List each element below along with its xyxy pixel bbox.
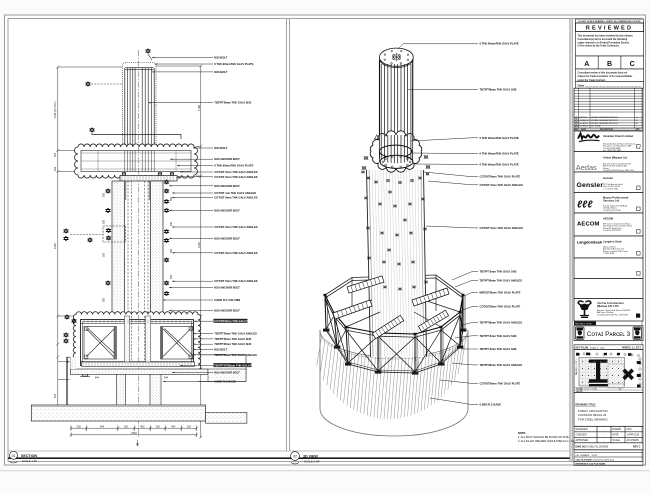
svg-text:M10 ANCHOR BOLT: M10 ANCHOR BOLT (214, 286, 240, 290)
svg-text:10-FEB-15: 10-FEB-15 (579, 126, 588, 128)
svg-text:500: 500 (103, 192, 106, 197)
svg-text:KEY NUMBER 31129: KEY NUMBER 31129 (576, 455, 598, 457)
svg-text:MBT/OT/8mm THK GALV PLATE: MBT/OT/8mm THK GALV PLATE (480, 290, 521, 294)
svg-text:status referred to in Project: status referred to in Project Procedure … (578, 41, 630, 44)
svg-text:2. ALL FILLET WELDED SHOULD BE: 2. ALL FILLET WELDED SHOULD BE 6mm THK. (518, 439, 575, 443)
svg-text:DRAWN: DRAWN (613, 428, 622, 431)
svg-text:DATE: DATE (613, 434, 619, 437)
svg-text:COT/OT mm THK GALV ANGLES: COT/OT mm THK GALV ANGLES (214, 191, 256, 195)
svg-text:25-FEB-15: 25-FEB-15 (579, 123, 588, 125)
svg-text:COT/OT/8mm THK GALV PLATE: COT/OT/8mm THK GALV PLATE (480, 381, 521, 385)
svg-text:AECOM: AECOM (603, 216, 614, 220)
svg-text:SCALE 1:25: SCALE 1:25 (22, 459, 37, 463)
svg-text:944: 944 (171, 425, 176, 428)
svg-text:TBT/PT 8mm THK GALV SHS: TBT/PT 8mm THK GALV SHS (480, 270, 517, 274)
svg-text:PARCEL 1, LOT 1: PARCEL 1, LOT 1 (575, 358, 578, 375)
svg-text:TBT/PT/8mm THK GALV ANGLES: TBT/PT/8mm THK GALV ANGLES (214, 353, 257, 357)
svg-text:This document has been reviewe: This document has been reviewed by the r… (578, 35, 633, 38)
svg-text:200: 200 (156, 425, 161, 428)
svg-text:M10 ANCHOR BOLT: M10 ANCHOR BOLT (214, 236, 240, 240)
svg-text:PROJECT TITLE: PROJECT TITLE (575, 323, 592, 325)
svg-text:TBT/PT/8mm THK GALV ANGLES: TBT/PT/8mm THK GALV ANGLES (480, 363, 523, 367)
svg-text:500: 500 (103, 297, 106, 302)
svg-text:UPDATE GENERAL REVISION: UPDATE GENERAL REVISION (591, 119, 618, 122)
svg-text:Gensler: Gensler (603, 176, 613, 180)
svg-text:1400: 1400 (53, 243, 57, 249)
svg-text:6 THK 90mmTHK GALV PLATE: 6 THK 90mmTHK GALV PLATE (480, 162, 519, 166)
svg-text:SECTION: SECTION (21, 454, 37, 458)
svg-text:6 BED R.C BASE: 6 BED R.C BASE (214, 379, 236, 383)
svg-text:REVIEWED: REVIEWED (586, 26, 633, 32)
svg-text:COT/OT 6mm THK GALV ANGLES: COT/OT 6mm THK GALV ANGLES (214, 170, 258, 174)
svg-text:COT/OT/8mm THK GALV PLATE: COT/OT/8mm THK GALV PLATE (214, 319, 255, 323)
svg-text:PARCEL 1, LOT 2: PARCEL 1, LOT 2 (622, 346, 642, 349)
svg-text:M10 BOLT: M10 BOLT (214, 56, 227, 60)
svg-text:18-MAR-15: 18-MAR-15 (579, 119, 589, 122)
svg-text:NOTE:: NOTE: (518, 431, 526, 435)
svg-text:DRAWING TITLE:: DRAWING TITLE: (576, 404, 597, 407)
svg-text:500: 500 (170, 274, 173, 279)
svg-text:944: 944 (53, 166, 57, 171)
svg-text:TBT/PT/OT/8mm THK GALV PLATE: TBT/PT/OT/8mm THK GALV PLATE (214, 364, 259, 368)
svg-text:(Macau) CO. LTD.: (Macau) CO. LTD. (597, 304, 619, 308)
svg-text:M10 ANCHOR BOLT: M10 ANCHOR BOLT (214, 208, 240, 212)
svg-text:REV C: REV C (633, 445, 641, 448)
svg-text:KEY PLAN: KEY PLAN (576, 346, 589, 349)
svg-text:COT/OT 6mm THK GALV ANGLES: COT/OT 6mm THK GALV ANGLES (480, 183, 524, 187)
svg-text:6 THK 90mmTHK GALV PLATE: 6 THK 90mmTHK GALV PLATE (480, 136, 519, 140)
svg-text:ℓℓℓ: ℓℓℓ (577, 200, 593, 211)
svg-text:COT/OT/8mm THK GALV PLATE: COT/OT/8mm THK GALV PLATE (480, 305, 521, 309)
svg-text:Tel: (852) 3922 9000: Tel: (852) 3922 9000 (603, 230, 620, 232)
svg-text:A: A (584, 61, 589, 68)
svg-text:1400: 1400 (197, 242, 201, 248)
svg-text:TBT/PT/8mm THK GALV ANGLES: TBT/PT/8mm THK GALV ANGLES (480, 278, 523, 282)
svg-text:TBT/PT/8mm THK GALV SHS: TBT/PT/8mm THK GALV SHS (480, 88, 517, 92)
svg-text:AS SHOWN: AS SHOWN (627, 439, 640, 442)
svg-text:200: 200 (187, 425, 192, 428)
svg-text:500: 500 (103, 252, 106, 257)
svg-text:COT/OT 6mm THK GALV ANGLES: COT/OT 6mm THK GALV ANGLES (214, 279, 258, 283)
svg-text:500: 500 (170, 196, 173, 201)
svg-text:CAD FILE NAME 3-SUB_FQ_05093.d: CAD FILE NAME 3-SUB_FQ_05093.dwg (576, 458, 615, 461)
svg-text:UPDATE GENERAL REVISION: UPDATE GENERAL REVISION (591, 116, 618, 119)
svg-text:B: B (607, 61, 612, 68)
svg-text:1-APR-2015: 1-APR-2015 (627, 434, 640, 437)
svg-text:M10 BOLT: M10 BOLT (214, 348, 227, 352)
svg-text:Consultants(s) and is accorded: Consultants(s) and is accorded the follo… (578, 38, 628, 41)
svg-text:AECOM: AECOM (577, 222, 600, 228)
svg-text:SCALE 1:NP: SCALE 1:NP (304, 459, 320, 463)
svg-text:DESIGNED: DESIGNED (576, 429, 588, 431)
svg-text:SCALE 1 : 7500: SCALE 1 : 7500 (590, 346, 605, 349)
svg-text:1. ALL BOLT SHOULD BE FIXING O: 1. ALL BOLT SHOULD BE FIXING ON SITE. (518, 435, 570, 439)
svg-text:TBT/PT/8mm THK GALV SHS: TBT/PT/8mm THK GALV SHS (214, 337, 251, 341)
svg-text:500: 500 (53, 393, 57, 398)
svg-text:TBT/PT/8mm THK GALV SHS: TBT/PT/8mm THK GALV SHS (214, 342, 251, 346)
svg-text:M10 ANCHOR BOLT: M10 ANCHOR BOLT (214, 309, 240, 313)
svg-text:3D VIEW: 3D VIEW (303, 455, 318, 459)
svg-text:CHECKED: CHECKED (576, 435, 588, 437)
svg-text:3-APR-15: 3-APR-15 (579, 116, 587, 119)
svg-text:200: 200 (124, 425, 129, 428)
svg-text:6 BED R.C COLUMN: 6 BED R.C COLUMN (214, 298, 240, 302)
svg-text:Venetian Orient Limited: Venetian Orient Limited (603, 134, 633, 138)
svg-text:LWO: LWO (627, 429, 632, 431)
svg-text:Services Ltd.: Services Ltd. (603, 198, 620, 202)
svg-text:UPDATE GENERAL REVISION: UPDATE GENERAL REVISION (591, 122, 618, 125)
svg-text:Consultant review of this docu: Consultant review of this document does … (578, 72, 628, 75)
svg-text:TBT/PT/8mm THK GALV SHS: TBT/PT/8mm THK GALV SHS (214, 101, 251, 105)
svg-text:450: 450 (140, 425, 145, 428)
svg-text:REFERENCE CAD FILE NAME: REFERENCE CAD FILE NAME (576, 463, 606, 466)
svg-text:M10 BOLT: M10 BOLT (214, 70, 227, 74)
svg-text:APPROVED: APPROVED (576, 439, 589, 442)
svg-text:COT/OT 6mm THK GALV ANGLES: COT/OT 6mm THK GALV ANGLES (480, 226, 524, 230)
svg-text:6 THK 90mmTHK GALV PLATE: 6 THK 90mmTHK GALV PLATE (214, 164, 253, 168)
svg-text:relieve the Trade Contractor o: relieve the Trade Contractor of its resp… (578, 75, 634, 78)
svg-text:1788: 1788 (197, 105, 201, 111)
svg-text:Langdon Seah: Langdon Seah (603, 239, 622, 243)
svg-text:Cᴏᴛᴀɪ Pᴀʀᴄᴇʟ 3: Cᴏᴛᴀɪ Pᴀʀᴄᴇʟ 3 (587, 331, 631, 338)
svg-text:SCALE: SCALE (613, 439, 621, 442)
svg-text:Tel: (853) 2870 0389 Fax: 287: Tel: (853) 2870 0389 Fax: 2870 0392 (597, 314, 628, 316)
svg-text:2594: 2594 (131, 432, 137, 435)
svg-text:TBT/PT 8mm THK GALV SHS: TBT/PT 8mm THK GALV SHS (480, 347, 517, 351)
svg-text:COT/OT/8mm THK GALV PLATE: COT/OT/8mm THK GALV PLATE (480, 175, 521, 179)
svg-text:T. 1 212 492 1400: T. 1 212 492 1400 (603, 188, 618, 190)
svg-text:3-SUB_FQ_05-B093: 3-SUB_FQ_05-B093 (586, 445, 609, 448)
svg-text:944: 944 (95, 376, 100, 379)
svg-text:COT/OT 6mm THK GALV ANGLES: COT/OT 6mm THK GALV ANGLES (214, 175, 258, 179)
svg-text:944: 944 (164, 376, 169, 379)
svg-text:M10 ANCHOR BOLT: M10 ANCHOR BOLT (214, 371, 240, 375)
svg-text:DWG NO: DWG NO (576, 445, 586, 448)
svg-text:6 THK 90mmTHK GALV PLATE: 6 THK 90mmTHK GALV PLATE (480, 152, 519, 156)
svg-text:6 THK 90mmTHK GALV PLATE: 6 THK 90mmTHK GALV PLATE (214, 62, 253, 66)
svg-text:6 THK 90mmTHK GALV PLATE: 6 THK 90mmTHK GALV PLATE (480, 42, 519, 46)
svg-text:C: C (630, 61, 635, 68)
svg-text:02: 02 (293, 455, 297, 459)
svg-text:01: 01 (12, 454, 16, 458)
svg-text:Aedas: Aedas (576, 163, 597, 172)
svg-text:LangdonSeah: LangdonSeah (577, 241, 603, 245)
svg-text:500: 500 (170, 248, 173, 253)
svg-text:1ST ISSUE: 1ST ISSUE (591, 126, 601, 128)
svg-text:1788 (TO FFL): 1788 (TO FFL) (53, 101, 57, 118)
svg-text:COT/OT 6mm THK GALV ANGLES: COT/OT 6mm THK GALV ANGLES (214, 225, 258, 229)
svg-text:M10 BOLT: M10 BOLT (214, 146, 227, 150)
svg-text:Tel: (853) 287 12268: Tel: (853) 287 12268 (603, 210, 620, 212)
svg-text:Date :: Date : (578, 84, 587, 88)
svg-text:6 BED R.C BASE: 6 BED R.C BASE (480, 403, 502, 407)
svg-text:M10 ANCHOR BOLT: M10 ANCHOR BOLT (214, 157, 240, 161)
svg-text:COT/OT 6mm THK GALV ANGLES: COT/OT 6mm THK GALV ANGLES (214, 251, 258, 255)
svg-text:M10 ANCHOR BOLT: M10 ANCHOR BOLT (214, 184, 240, 188)
svg-text:T. 2833 3088: T. 2833 3088 (603, 253, 614, 255)
svg-text:5.4 for action by the Trade Co: 5.4 for action by the Trade Contractor. (578, 45, 620, 48)
svg-text:500: 500 (103, 219, 106, 224)
svg-text:FOR STEEL DRAWING: FOR STEEL DRAWING (578, 417, 608, 421)
svg-text:TBT/PT/8mm THK GALV ANGLES: TBT/PT/8mm THK GALV ANGLES (214, 332, 257, 336)
svg-text:TBT/PT 8mm THK GALV SHS: TBT/PT 8mm THK GALV SHS (480, 334, 517, 338)
svg-text:Gensler: Gensler (577, 182, 604, 189)
svg-text:200: 200 (77, 425, 82, 428)
svg-text:300: 300 (53, 152, 57, 157)
svg-text:TBT/PT/8mm THK GALV ANGLES: TBT/PT/8mm THK GALV ANGLES (480, 321, 523, 325)
svg-text:500: 500 (170, 221, 173, 226)
svg-text:944: 944 (100, 425, 105, 428)
svg-text:Aedas (Macau) Ltd.: Aedas (Macau) Ltd. (603, 155, 628, 159)
svg-text:COT/OT 6mm THK GALV ANGLES: COT/OT 6mm THK GALV ANGLES (214, 196, 258, 200)
